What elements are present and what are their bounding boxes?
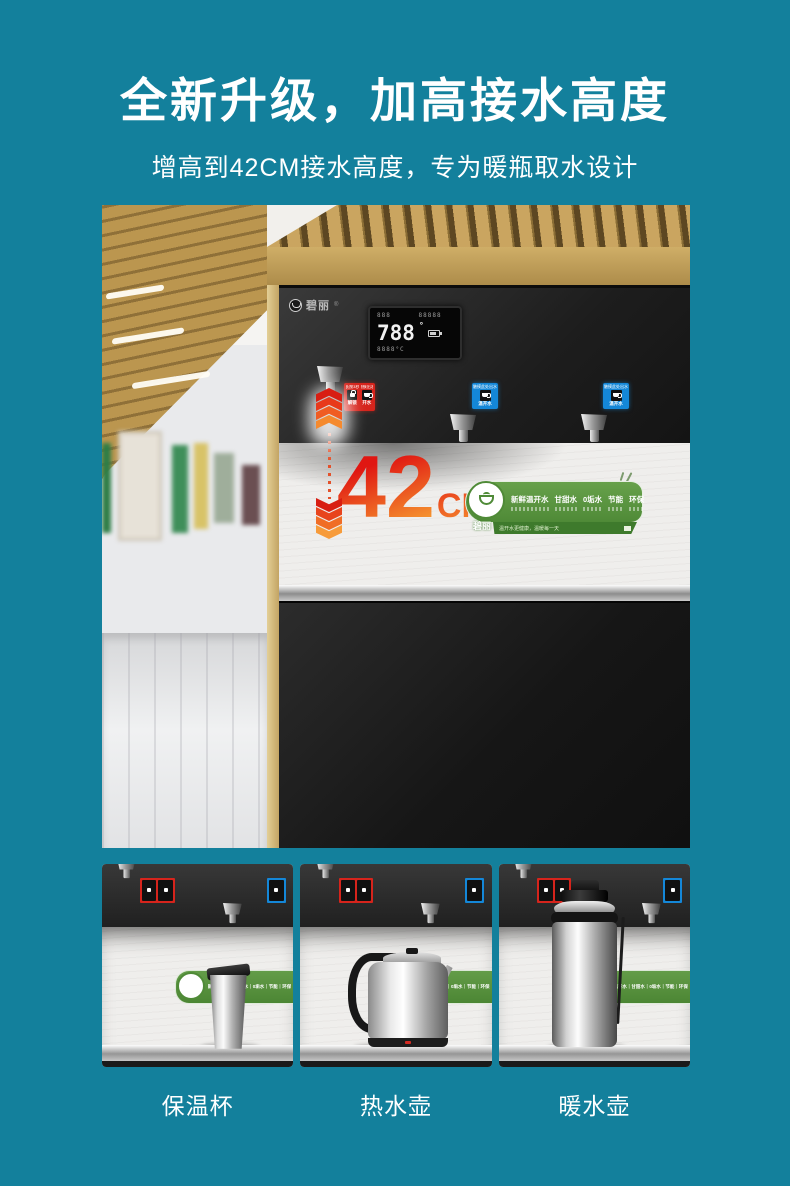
warm-water-touch-panel (267, 878, 286, 902)
height-measure-arrow (315, 393, 343, 579)
faucet-right (581, 414, 607, 446)
brand-logo: 碧丽 ® (289, 297, 338, 313)
electric-kettle (348, 949, 447, 1046)
machine-bottom-cabinet (279, 601, 690, 848)
banner-tagline-strip: 温开水更健康，温暖每一天 (493, 522, 637, 534)
lcd-row-top: 888 88888 (377, 313, 453, 319)
thumbnail-kettle-image: 新鲜温开水｜甘甜水｜0垢水｜节能｜环保 (300, 864, 491, 1067)
faucet-left (117, 864, 136, 881)
banner-logo-icon (467, 481, 505, 519)
machine-niche: 碧丽 ® 888 88888 788 ° 8888°C (267, 205, 690, 848)
hot-water-touch-panel (339, 878, 373, 902)
wall-tan-side (267, 285, 279, 848)
thumbnail-kettle: 新鲜温开水｜甘甜水｜0垢水｜节能｜环保 热水壶 (300, 864, 491, 1121)
hallway-scene (102, 205, 267, 848)
page-title: 全新升级，加高接水高度 (0, 62, 790, 131)
warm-water-touch-panel (663, 878, 682, 902)
faucet-left (316, 864, 335, 881)
faucet-center (223, 903, 242, 926)
water-dispenser: 碧丽 ® 888 88888 788 ° 8888°C (279, 285, 690, 848)
faucet-center (421, 903, 440, 926)
cup-icon (480, 390, 491, 401)
lcd-display: 888 88888 788 ° 8888°C (368, 306, 462, 360)
height-value: 42 (337, 451, 435, 523)
warm-water-touch-panel-2[interactable]: 触摸此处出水 温开水 (603, 383, 629, 409)
faucet-center (450, 414, 476, 446)
hallway-floor (102, 633, 267, 848)
lcd-row-bottom: 8888°C (377, 347, 453, 353)
hallway-wall (102, 373, 267, 663)
thumbnail-thermos-label: 暖水壶 (499, 1087, 690, 1121)
thumbnail-cup-label: 保温杯 (102, 1087, 293, 1121)
lcd-temperature: 788 ° (377, 321, 453, 345)
brand-feature-banner: 碧丽 新鲜温开水 甘甜水 0垢水 节能 环保 温开水更健康，温暖每一天 (465, 481, 643, 539)
cup-icon (362, 390, 372, 400)
lock-icon (347, 390, 357, 400)
warm-water-touch-panel (465, 878, 484, 902)
warm-water-touch-panel-1[interactable]: 触摸此处出水 温开水 (472, 383, 498, 409)
faucet-left (514, 864, 533, 881)
thumbnail-cup: 新鲜温开水｜甘甜水｜0垢水｜节能｜环保 保温杯 (102, 864, 293, 1121)
hot-water-touch-panel (140, 878, 174, 902)
promo-page: 全新升级，加高接水高度 增高到42CM接水高度，专为暖瓶取水设计 (0, 0, 790, 1186)
battery-icon (428, 330, 440, 337)
page-subtitle: 增高到42CM接水高度，专为暖瓶取水设计 (0, 148, 790, 184)
feature-list: 新鲜温开水 甘甜水 0垢水 节能 环保 (511, 481, 639, 523)
thumbnail-thermos: 新鲜温开水｜甘甜水｜0垢水｜节能｜环保 暖水壶 (499, 864, 690, 1121)
wood-slat-ceiling (267, 205, 690, 247)
banner-brand-name: 碧丽 (473, 519, 491, 532)
thumbnail-thermos-image: 新鲜温开水｜甘甜水｜0垢水｜节能｜环保 (499, 864, 690, 1067)
usage-thumbnails: 新鲜温开水｜甘甜水｜0垢水｜节能｜环保 保温杯 (102, 864, 690, 1121)
cup-icon (611, 390, 622, 401)
faucet-center (642, 903, 661, 926)
thumbnail-kettle-label: 热水壶 (300, 1087, 491, 1121)
thermos-flask (550, 880, 619, 1046)
wall-tan-band (267, 247, 690, 285)
drip-tray-edge (279, 585, 690, 601)
brand-name: 碧丽 (306, 297, 330, 313)
insulated-cup (209, 966, 247, 1049)
thumbnail-cup-image: 新鲜温开水｜甘甜水｜0垢水｜节能｜环保 (102, 864, 293, 1067)
brand-logo-icon (289, 299, 302, 312)
hero-photo: 碧丽 ® 888 88888 788 ° 8888°C (102, 205, 690, 848)
